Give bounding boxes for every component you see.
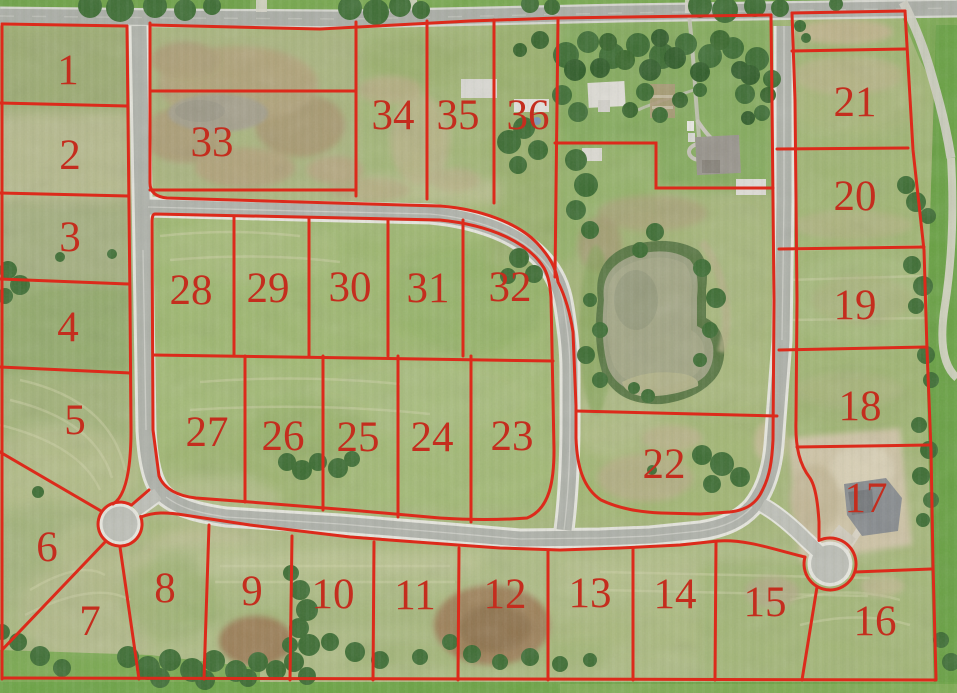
svg-text:16: 16	[854, 598, 897, 645]
svg-text:2: 2	[59, 132, 81, 179]
svg-text:6: 6	[36, 524, 58, 571]
svg-text:5: 5	[64, 397, 86, 444]
svg-text:18: 18	[839, 383, 882, 430]
svg-text:1: 1	[57, 47, 79, 94]
svg-text:22: 22	[643, 441, 686, 488]
svg-text:7: 7	[79, 598, 101, 645]
svg-text:19: 19	[834, 282, 877, 329]
svg-text:34: 34	[372, 92, 415, 139]
svg-text:33: 33	[191, 119, 234, 166]
svg-text:30: 30	[329, 264, 372, 311]
svg-text:14: 14	[654, 571, 697, 618]
svg-text:32: 32	[489, 264, 532, 311]
svg-text:17: 17	[845, 475, 888, 522]
svg-text:25: 25	[337, 414, 380, 461]
svg-text:23: 23	[491, 413, 534, 460]
svg-text:3: 3	[59, 214, 81, 261]
svg-text:35: 35	[437, 92, 480, 139]
svg-text:4: 4	[57, 304, 79, 351]
svg-text:31: 31	[407, 265, 450, 312]
svg-text:9: 9	[241, 568, 263, 615]
svg-text:11: 11	[394, 572, 435, 619]
svg-text:24: 24	[411, 414, 454, 461]
svg-text:13: 13	[569, 570, 612, 617]
svg-text:12: 12	[484, 571, 527, 618]
svg-text:20: 20	[834, 173, 877, 220]
svg-text:10: 10	[312, 571, 355, 618]
svg-text:28: 28	[170, 267, 213, 314]
svg-text:15: 15	[744, 579, 787, 626]
svg-text:21: 21	[834, 79, 877, 126]
svg-text:26: 26	[262, 413, 305, 460]
svg-text:29: 29	[247, 265, 290, 312]
svg-text:8: 8	[154, 565, 176, 612]
svg-text:27: 27	[186, 409, 229, 456]
svg-text:36: 36	[507, 92, 550, 139]
